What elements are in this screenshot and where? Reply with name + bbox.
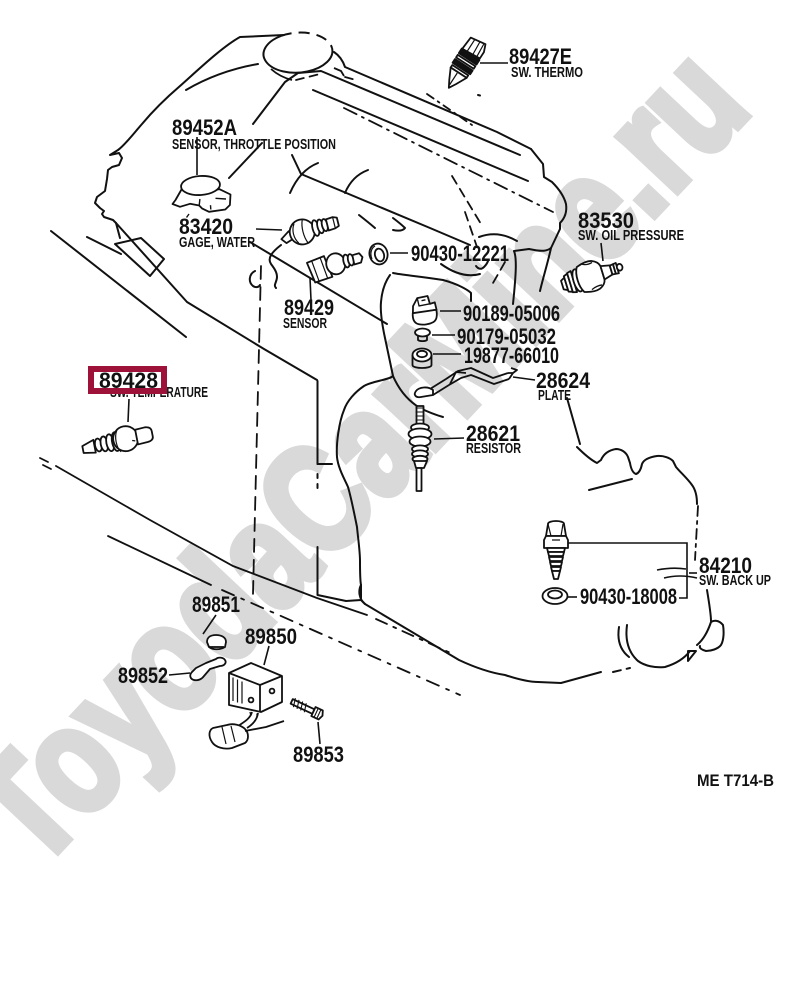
svg-text:89851: 89851: [192, 592, 240, 617]
svg-text:SW. BACK UP: SW. BACK UP: [699, 573, 771, 589]
svg-text:SW. OIL PRESSURE: SW. OIL PRESSURE: [578, 228, 684, 244]
svg-text:SENSOR, THROTTLE POSITION: SENSOR, THROTTLE POSITION: [172, 137, 336, 153]
svg-text:RESISTOR: RESISTOR: [466, 441, 521, 457]
svg-text:89852: 89852: [118, 663, 168, 688]
svg-text:90430-18008: 90430-18008: [580, 584, 677, 609]
svg-text:SENSOR: SENSOR: [283, 316, 327, 332]
svg-text:90430-12221: 90430-12221: [411, 241, 509, 266]
svg-text:89850: 89850: [245, 624, 297, 649]
svg-text:PLATE: PLATE: [538, 388, 571, 404]
svg-text:19877-66010: 19877-66010: [464, 343, 559, 368]
svg-text:89428: 89428: [99, 368, 158, 393]
svg-text:89853: 89853: [293, 742, 344, 767]
svg-text:90189-05006: 90189-05006: [463, 301, 560, 326]
svg-text:SW. THERMO: SW. THERMO: [511, 65, 583, 81]
svg-text:GAGE, WATER: GAGE, WATER: [179, 235, 255, 251]
svg-text:ME T714-B: ME T714-B: [697, 771, 774, 790]
